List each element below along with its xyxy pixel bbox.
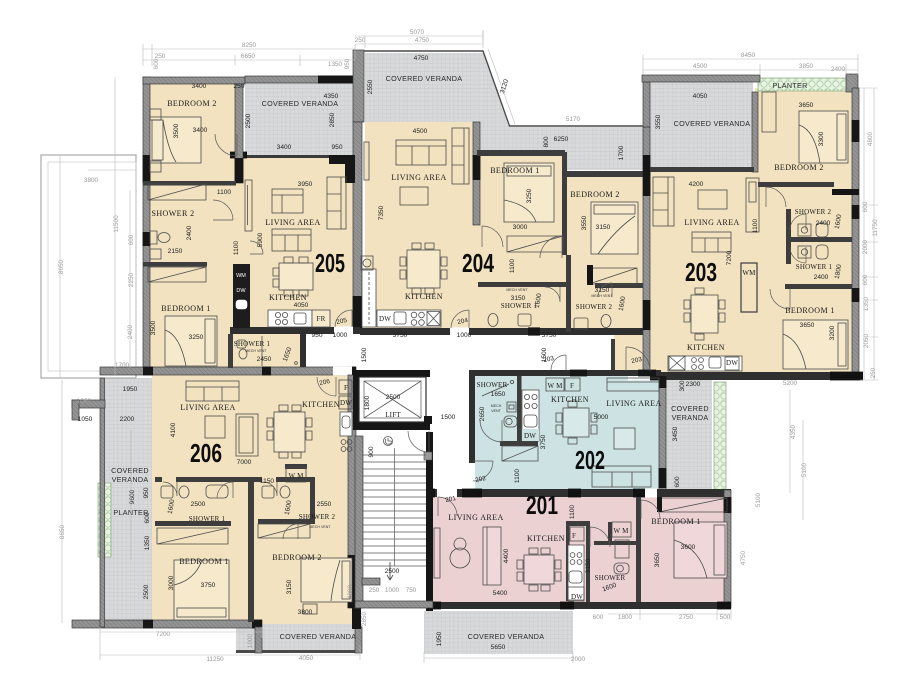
svg-text:SHOWER: SHOWER — [477, 381, 508, 389]
svg-text:3300: 3300 — [818, 131, 825, 146]
svg-text:2450: 2450 — [257, 356, 272, 363]
svg-text:DW: DW — [571, 593, 583, 601]
svg-text:5650: 5650 — [491, 644, 506, 651]
svg-text:SHOWER 2: SHOWER 2 — [299, 513, 336, 521]
svg-text:5000: 5000 — [594, 414, 609, 421]
svg-text:4500: 4500 — [413, 128, 428, 135]
svg-text:202: 202 — [575, 445, 605, 475]
svg-text:F: F — [572, 532, 576, 540]
svg-text:1000: 1000 — [333, 332, 348, 339]
svg-text:1000: 1000 — [385, 587, 400, 594]
svg-text:COVERED: COVERED — [671, 404, 709, 413]
svg-text:SHOWER 2: SHOWER 2 — [795, 208, 832, 216]
svg-text:BEDROOM 2: BEDROOM 2 — [570, 190, 620, 199]
svg-text:3400: 3400 — [193, 127, 208, 134]
svg-text:LIVING AREA: LIVING AREA — [265, 218, 320, 227]
svg-text:3800: 3800 — [298, 609, 313, 616]
svg-text:BEDROOM 1: BEDROOM 1 — [161, 304, 211, 313]
svg-text:650: 650 — [848, 77, 855, 88]
svg-text:1800: 1800 — [364, 395, 371, 410]
svg-text:3200: 3200 — [829, 325, 836, 340]
svg-text:205: 205 — [315, 248, 345, 278]
svg-text:LIFT: LIFT — [385, 411, 401, 419]
svg-text:9600: 9600 — [129, 489, 136, 504]
svg-text:WM: WM — [742, 269, 756, 277]
svg-text:2400: 2400 — [831, 66, 846, 73]
svg-text:COVERED VERANDA: COVERED VERANDA — [262, 99, 339, 108]
svg-text:LIVING AREA: LIVING AREA — [684, 218, 739, 227]
svg-text:800: 800 — [543, 136, 550, 147]
svg-text:600: 600 — [862, 274, 869, 285]
svg-text:1050: 1050 — [78, 416, 93, 423]
svg-text:1350: 1350 — [328, 61, 343, 68]
svg-text:11500: 11500 — [113, 215, 120, 233]
svg-text:SHOWER 2: SHOWER 2 — [576, 303, 613, 311]
svg-text:SHOWER 1: SHOWER 1 — [796, 263, 833, 271]
svg-text:COVERED VERANDA: COVERED VERANDA — [468, 632, 545, 641]
svg-text:1100: 1100 — [509, 259, 516, 274]
svg-text:2150: 2150 — [168, 248, 183, 255]
svg-text:SHOWER 1: SHOWER 1 — [234, 340, 271, 348]
svg-text:201: 201 — [526, 490, 558, 520]
svg-text:1500: 1500 — [361, 347, 368, 362]
svg-text:3750: 3750 — [201, 582, 216, 589]
svg-text:4750: 4750 — [415, 37, 430, 44]
svg-text:3400: 3400 — [277, 144, 292, 151]
svg-text:LIVING AREA: LIVING AREA — [391, 173, 446, 182]
svg-text:250: 250 — [155, 53, 166, 60]
svg-text:3150: 3150 — [286, 579, 293, 594]
svg-text:5400: 5400 — [493, 590, 508, 597]
svg-text:2200: 2200 — [120, 416, 135, 423]
svg-text:COVERED VERANDA: COVERED VERANDA — [280, 632, 357, 641]
svg-text:2550: 2550 — [367, 79, 374, 94]
svg-text:DW: DW — [524, 432, 536, 440]
svg-text:4050: 4050 — [294, 302, 309, 309]
svg-text:3500: 3500 — [150, 320, 157, 335]
svg-text:1000: 1000 — [247, 633, 254, 648]
svg-text:4500: 4500 — [693, 63, 708, 70]
svg-text:LIVING AREA: LIVING AREA — [448, 513, 503, 522]
svg-text:2400: 2400 — [186, 225, 193, 240]
svg-text:3750: 3750 — [393, 332, 408, 339]
svg-text:4400: 4400 — [503, 548, 510, 563]
svg-text:SHOWER: SHOWER — [595, 574, 626, 582]
svg-text:2650: 2650 — [479, 406, 486, 421]
svg-text:8450: 8450 — [741, 52, 756, 59]
svg-text:1500: 1500 — [441, 414, 456, 421]
svg-text:600: 600 — [593, 614, 604, 621]
svg-text:250: 250 — [355, 37, 366, 44]
svg-text:2000: 2000 — [862, 239, 869, 254]
svg-text:4350: 4350 — [324, 93, 339, 100]
svg-text:COVERED VERANDA: COVERED VERANDA — [674, 119, 751, 128]
svg-text:MECH VENT: MECH VENT — [309, 525, 331, 529]
svg-text:W M: W M — [288, 472, 304, 480]
svg-text:MECH VENT: MECH VENT — [591, 294, 613, 298]
svg-text:4050: 4050 — [299, 655, 314, 662]
svg-text:3250: 3250 — [189, 334, 204, 341]
svg-text:250: 250 — [369, 587, 380, 594]
svg-text:SHOWER 1: SHOWER 1 — [501, 302, 538, 310]
svg-text:2500: 2500 — [245, 113, 252, 128]
svg-text:1700: 1700 — [115, 362, 130, 369]
svg-text:SHOWER 2: SHOWER 2 — [152, 209, 195, 218]
svg-text:BEDROOM 1: BEDROOM 1 — [785, 306, 835, 315]
svg-text:3800: 3800 — [84, 177, 99, 184]
svg-text:2850: 2850 — [329, 112, 336, 127]
svg-text:5070: 5070 — [410, 29, 425, 36]
svg-text:8650: 8650 — [59, 524, 66, 539]
svg-text:250: 250 — [233, 83, 244, 90]
svg-text:3650: 3650 — [799, 102, 814, 109]
svg-text:FR: FR — [317, 315, 326, 323]
svg-text:1950: 1950 — [436, 631, 443, 646]
svg-text:DW: DW — [726, 359, 738, 367]
svg-text:3400: 3400 — [192, 83, 207, 90]
svg-text:3850: 3850 — [799, 63, 814, 70]
svg-text:1950: 1950 — [123, 386, 138, 393]
svg-text:KITCHEN: KITCHEN — [269, 293, 307, 302]
svg-text:6650: 6650 — [241, 53, 256, 60]
svg-text:5900: 5900 — [257, 232, 264, 247]
svg-text:BEDROOM 2: BEDROOM 2 — [774, 163, 824, 172]
svg-text:950: 950 — [143, 487, 150, 498]
svg-text:2500: 2500 — [191, 501, 206, 508]
svg-text:1100: 1100 — [217, 189, 232, 196]
svg-text:MECH VENT: MECH VENT — [506, 288, 528, 292]
svg-text:VENT: VENT — [491, 409, 501, 413]
svg-text:DW: DW — [340, 399, 352, 407]
svg-text:DW: DW — [236, 288, 246, 294]
svg-text:2750: 2750 — [679, 614, 694, 621]
svg-text:KITCHEN: KITCHEN — [527, 534, 565, 543]
svg-text:BEDROOM 1: BEDROOM 1 — [179, 557, 229, 566]
svg-text:1650: 1650 — [491, 391, 506, 398]
svg-text:3250: 3250 — [526, 188, 533, 203]
svg-text:3000: 3000 — [168, 575, 175, 590]
svg-text:3150: 3150 — [585, 558, 592, 573]
svg-text:3650: 3650 — [654, 552, 661, 567]
svg-text:3450: 3450 — [672, 426, 679, 441]
svg-text:1100: 1100 — [752, 219, 759, 234]
svg-text:2500: 2500 — [386, 394, 401, 401]
svg-text:BEDROOM 1: BEDROOM 1 — [651, 517, 701, 526]
svg-text:3750: 3750 — [540, 434, 547, 449]
svg-text:W M: W M — [613, 527, 629, 535]
svg-text:3600: 3600 — [681, 544, 696, 551]
svg-text:F: F — [344, 384, 348, 392]
svg-text:VERANDA: VERANDA — [112, 475, 149, 484]
svg-text:LIVING AREA: LIVING AREA — [180, 403, 235, 412]
svg-text:3500: 3500 — [173, 123, 180, 138]
svg-text:3950: 3950 — [298, 181, 313, 188]
svg-text:600: 600 — [674, 476, 681, 487]
svg-text:LIVING AREA: LIVING AREA — [606, 399, 661, 408]
svg-text:2250: 2250 — [128, 272, 135, 287]
svg-text:2500: 2500 — [385, 568, 400, 575]
svg-text:4750: 4750 — [740, 550, 747, 565]
svg-text:1100: 1100 — [233, 241, 240, 256]
svg-text:BEDROOM 1: BEDROOM 1 — [490, 166, 540, 175]
svg-text:2550: 2550 — [317, 501, 332, 508]
svg-text:2400: 2400 — [814, 274, 829, 281]
svg-text:BEDROOM 2: BEDROOM 2 — [272, 553, 322, 562]
svg-text:7350: 7350 — [378, 205, 385, 220]
svg-text:KITCHEN: KITCHEN — [551, 395, 589, 404]
svg-text:BEDROOM 2: BEDROOM 2 — [167, 99, 217, 108]
svg-text:W M: W M — [547, 382, 563, 390]
svg-text:2500: 2500 — [143, 584, 150, 599]
svg-text:4750: 4750 — [414, 55, 429, 62]
svg-text:3550: 3550 — [655, 114, 662, 129]
svg-text:1100: 1100 — [569, 505, 576, 520]
svg-text:DW: DW — [379, 315, 391, 323]
svg-text:1050: 1050 — [77, 398, 92, 405]
svg-text:KITCHEN: KITCHEN — [687, 343, 725, 352]
svg-text:KITCHEN: KITCHEN — [405, 292, 443, 301]
svg-text:3550: 3550 — [581, 215, 588, 230]
svg-text:7200: 7200 — [726, 250, 733, 265]
svg-text:5100: 5100 — [755, 492, 762, 507]
svg-text:4050: 4050 — [693, 93, 708, 100]
svg-text:900: 900 — [368, 446, 375, 457]
svg-text:5200: 5200 — [783, 380, 798, 387]
svg-text:206: 206 — [190, 438, 222, 468]
svg-text:600: 600 — [128, 234, 135, 245]
svg-text:1700: 1700 — [618, 145, 625, 160]
svg-text:5100: 5100 — [801, 462, 808, 477]
svg-text:1350: 1350 — [144, 535, 151, 550]
svg-text:COVERED VERANDA: COVERED VERANDA — [386, 74, 463, 83]
svg-text:750: 750 — [406, 587, 417, 594]
svg-text:VERANDA: VERANDA — [672, 413, 709, 422]
svg-text:MECH: MECH — [491, 404, 502, 408]
svg-text:PLANTER: PLANTER — [772, 81, 807, 90]
svg-text:MECH VENT: MECH VENT — [245, 349, 267, 353]
svg-text:3150: 3150 — [511, 295, 526, 302]
svg-text:8650: 8650 — [58, 259, 65, 274]
svg-text:5750: 5750 — [542, 332, 557, 339]
svg-text:3650: 3650 — [800, 322, 815, 329]
svg-text:204: 204 — [462, 248, 494, 278]
svg-text:11250: 11250 — [206, 656, 224, 663]
svg-text:KITCHEN: KITCHEN — [302, 400, 340, 409]
svg-text:1800: 1800 — [618, 614, 633, 621]
svg-text:2300: 2300 — [686, 381, 701, 388]
svg-text:3000: 3000 — [513, 224, 528, 231]
svg-text:4200: 4200 — [689, 181, 704, 188]
svg-text:8250: 8250 — [242, 42, 257, 49]
svg-text:2850: 2850 — [361, 611, 368, 626]
svg-text:1100: 1100 — [514, 469, 521, 484]
svg-text:F: F — [570, 382, 574, 390]
svg-text:4000: 4000 — [347, 584, 354, 599]
svg-text:4800: 4800 — [867, 131, 874, 146]
svg-text:950: 950 — [311, 332, 322, 339]
svg-text:600: 600 — [862, 201, 869, 212]
svg-text:2400: 2400 — [816, 220, 831, 227]
svg-text:2400: 2400 — [127, 324, 134, 339]
svg-text:5170: 5170 — [566, 116, 581, 123]
svg-text:3150: 3150 — [596, 224, 611, 231]
svg-text:WM: WM — [236, 273, 246, 279]
svg-text:250: 250 — [870, 367, 877, 378]
svg-text:COVERED: COVERED — [111, 466, 149, 475]
svg-text:1500: 1500 — [541, 347, 548, 362]
svg-text:3150: 3150 — [595, 287, 610, 294]
svg-text:7000: 7000 — [237, 459, 252, 466]
svg-text:500: 500 — [720, 614, 731, 621]
svg-text:300: 300 — [679, 380, 686, 391]
svg-text:950: 950 — [331, 144, 342, 151]
svg-text:1150: 1150 — [260, 478, 275, 485]
svg-text:1000: 1000 — [457, 332, 472, 339]
svg-text:11750: 11750 — [872, 219, 879, 237]
svg-text:203: 203 — [685, 257, 717, 287]
svg-text:SHOWER 1: SHOWER 1 — [189, 515, 226, 523]
svg-text:6250: 6250 — [554, 136, 569, 143]
svg-text:600: 600 — [144, 512, 151, 523]
svg-text:4100: 4100 — [170, 422, 177, 437]
svg-text:4350: 4350 — [790, 424, 797, 439]
